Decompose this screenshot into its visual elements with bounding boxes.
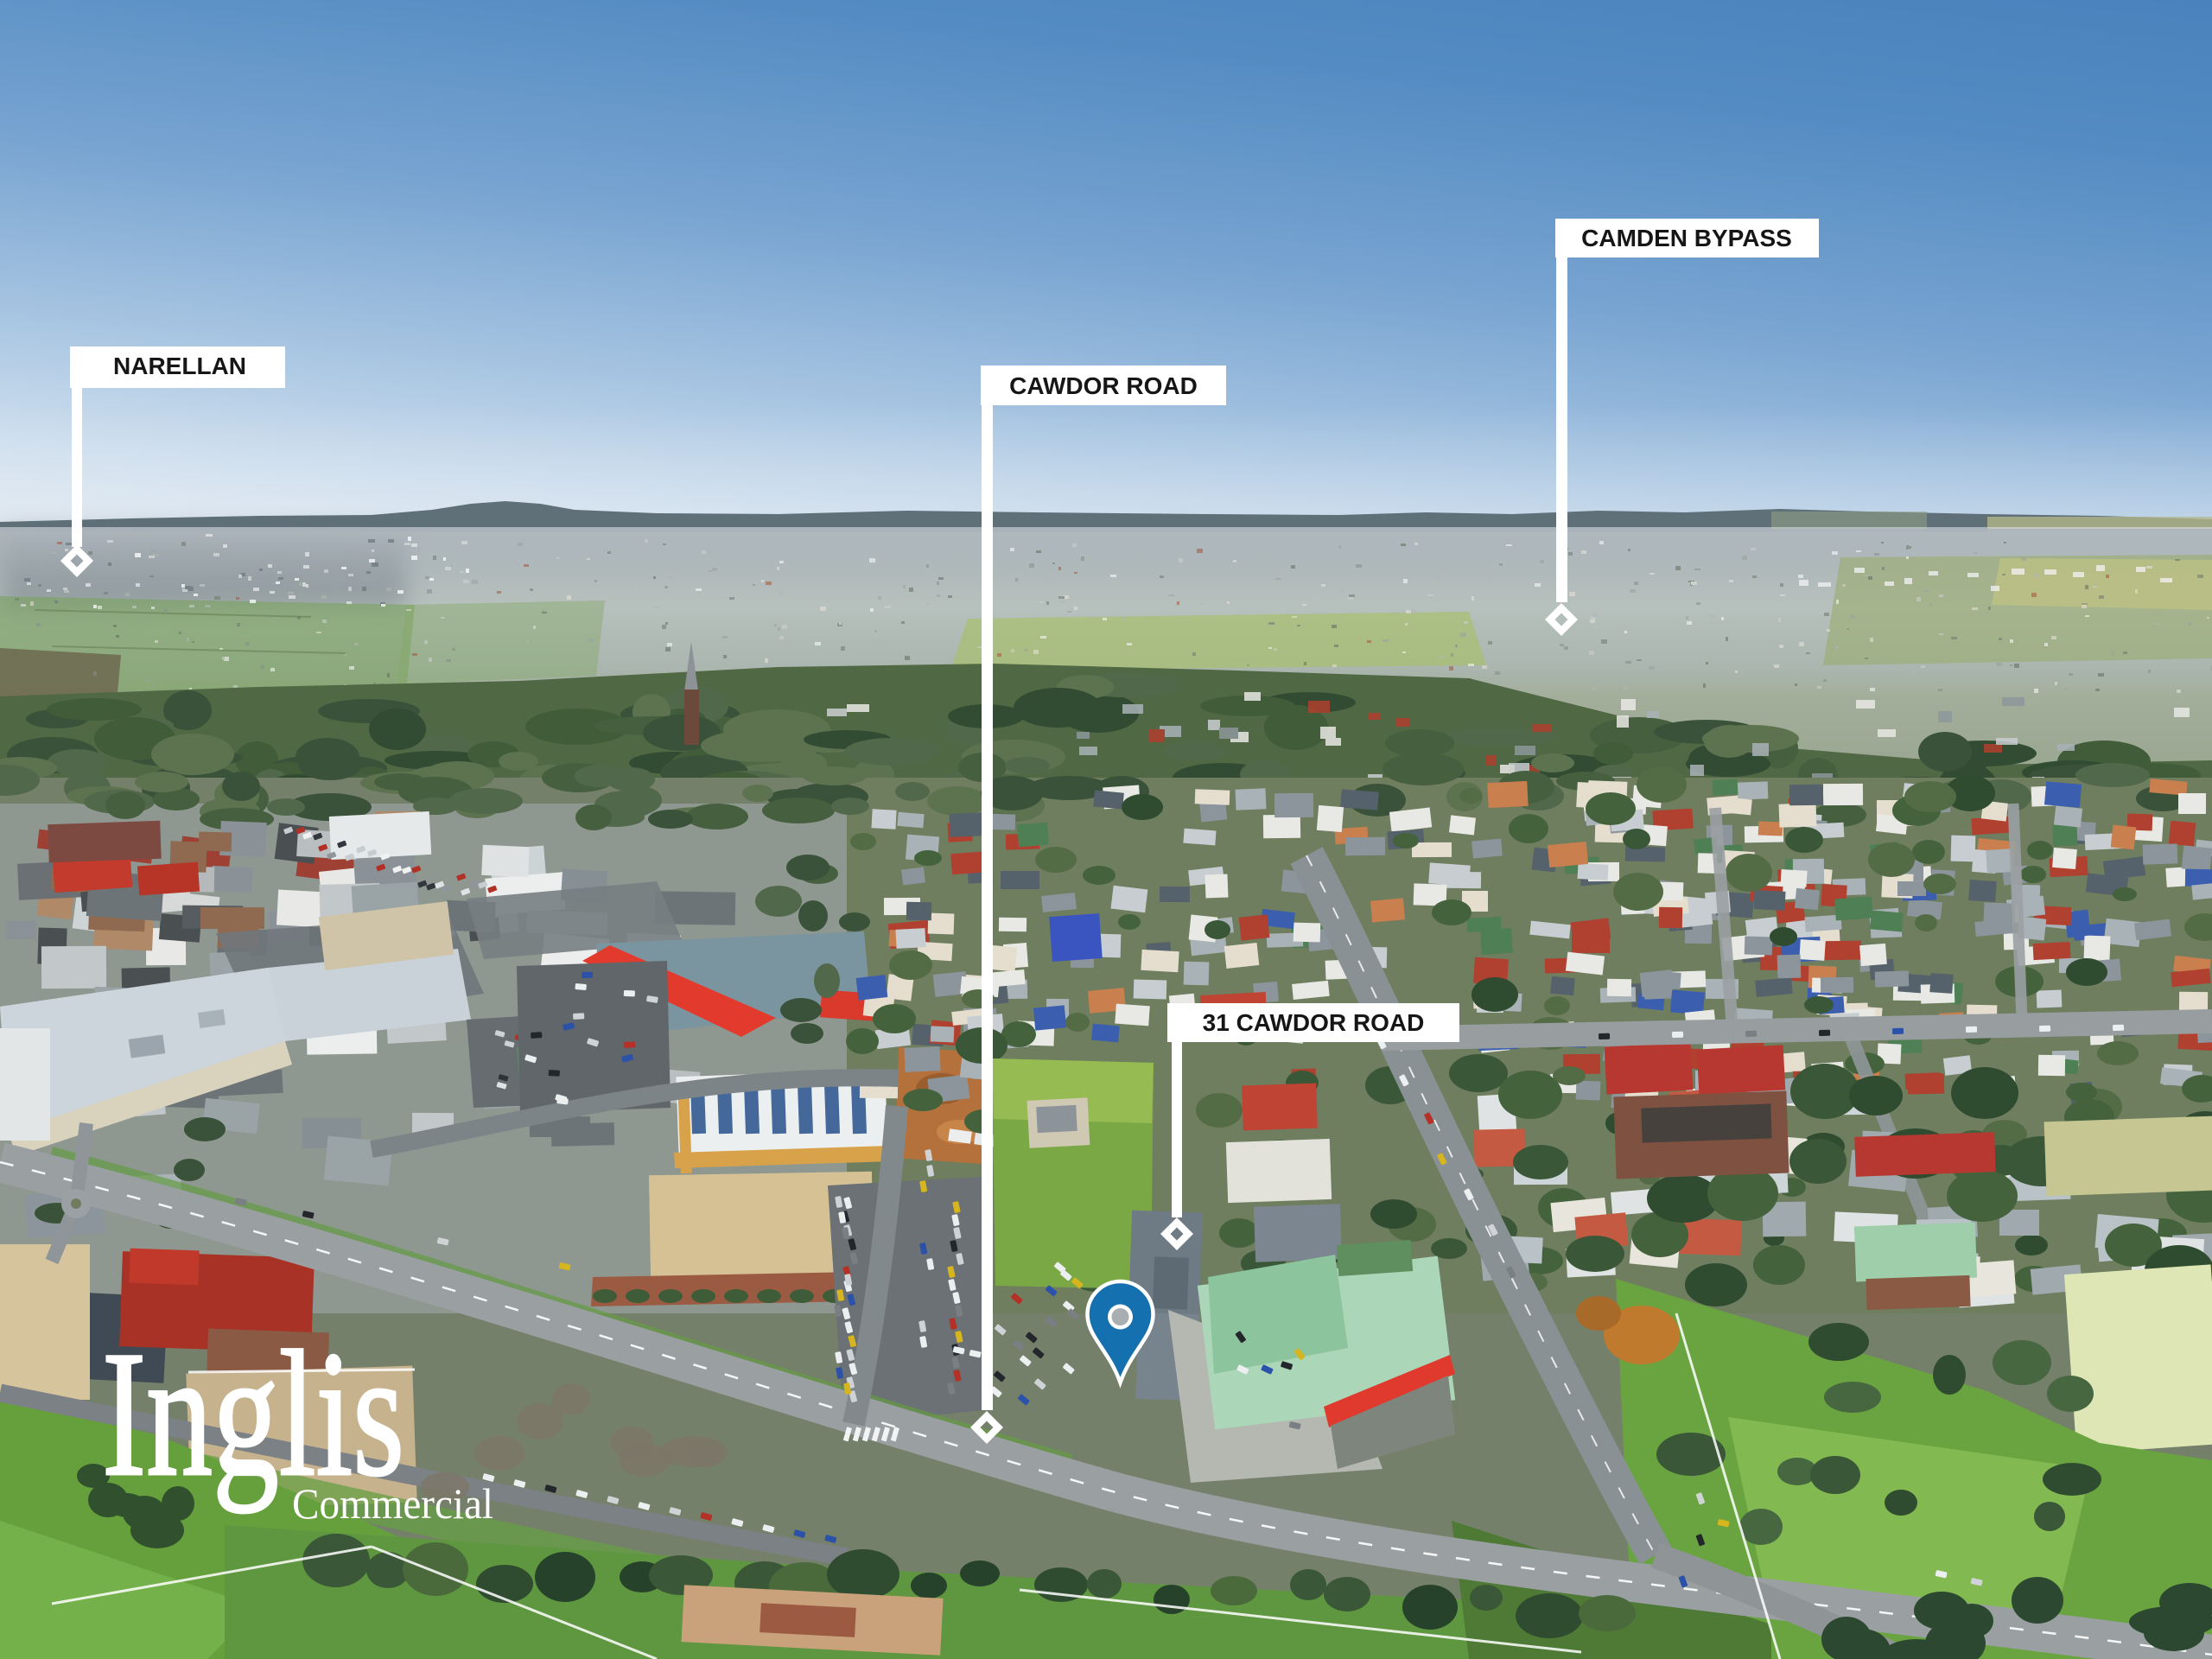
svg-text:CAMDEN BYPASS: CAMDEN BYPASS	[1581, 225, 1792, 251]
svg-text:31 CAWDOR ROAD: 31 CAWDOR ROAD	[1203, 1009, 1425, 1036]
svg-text:Commercial: Commercial	[292, 1479, 493, 1528]
svg-text:NARELLAN: NARELLAN	[113, 353, 246, 379]
svg-text:CAWDOR ROAD: CAWDOR ROAD	[1009, 372, 1198, 399]
